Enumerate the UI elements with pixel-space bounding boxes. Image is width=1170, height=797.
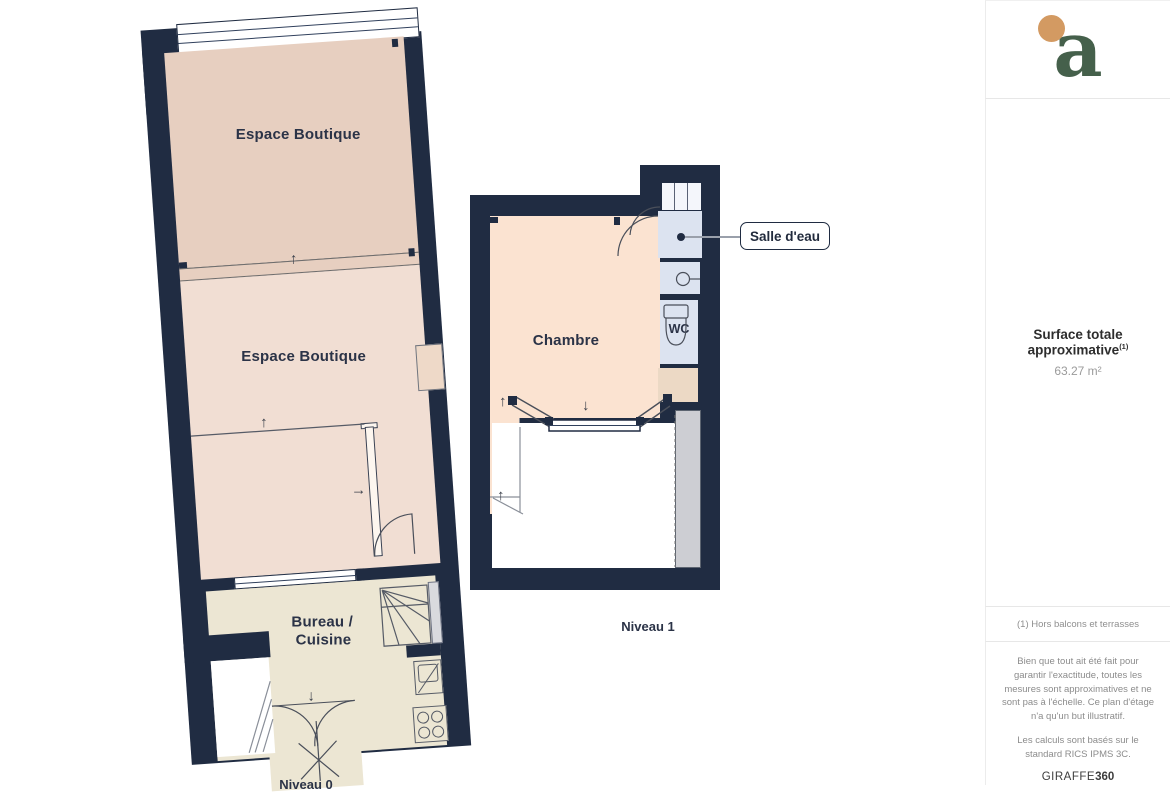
surface-title: Surface totale approximative(1): [994, 327, 1162, 358]
surface-footnote-ref: (1): [1119, 342, 1128, 351]
level0-linework: [140, 7, 471, 773]
disclaimer-text-2: Les calculs sont basés sur le standard R…: [1001, 734, 1155, 762]
footnote-text: (1) Hors balcons et terrasses: [1017, 619, 1139, 630]
arrow-up-icon: ↑: [497, 488, 505, 503]
disclaimer-text-1: Bien que tout ait été fait pour garantir…: [1001, 655, 1155, 724]
info-sidebar: a Surface totale approximative(1) 63.27 …: [985, 0, 1170, 785]
logo-dot-icon: [1038, 15, 1065, 42]
giraffe360-logo: GIRAFFE360: [1042, 771, 1115, 783]
agency-logo: a: [985, 0, 1170, 99]
floorplan-canvas: Espace Boutique Espace Boutique Bureau /…: [0, 0, 1170, 785]
callout-salle-deau: Salle d'eau: [740, 222, 830, 250]
footnote-panel: (1) Hors balcons et terrasses: [985, 607, 1170, 642]
floorplan-level0: Espace Boutique Espace Boutique Bureau /…: [140, 7, 471, 773]
room-label-bureau-cuisine-line1: Bureau /: [232, 613, 412, 630]
surface-value: 63.27 m²: [1054, 364, 1101, 378]
arrow-down-icon: ↓: [582, 398, 590, 413]
brand-name: GIRAFFE: [1042, 771, 1095, 783]
level1-label: Niveau 1: [588, 619, 708, 634]
surface-panel: Surface totale approximative(1) 63.27 m²: [985, 99, 1170, 607]
disclaimer-panel: Bien que tout ait été fait pour garantir…: [985, 642, 1170, 785]
arrow-up-icon: ↑: [260, 415, 268, 430]
room-label-chambre: Chambre: [476, 332, 656, 349]
arrow-up-icon: ↑: [290, 252, 298, 267]
room-label-espace-boutique-top: Espace Boutique: [208, 126, 388, 143]
room-label-bureau-cuisine-line2: Cuisine: [233, 631, 413, 648]
arrow-right-icon: →: [351, 483, 366, 498]
arrow-up-icon: ↑: [499, 394, 507, 409]
surface-title-text: Surface totale approximative: [1028, 327, 1123, 358]
arrow-down-icon: ↓: [307, 688, 315, 703]
brand-suffix: 360: [1095, 771, 1114, 783]
level1-linework: [470, 165, 720, 595]
room-label-espace-boutique-mid: Espace Boutique: [214, 348, 394, 365]
